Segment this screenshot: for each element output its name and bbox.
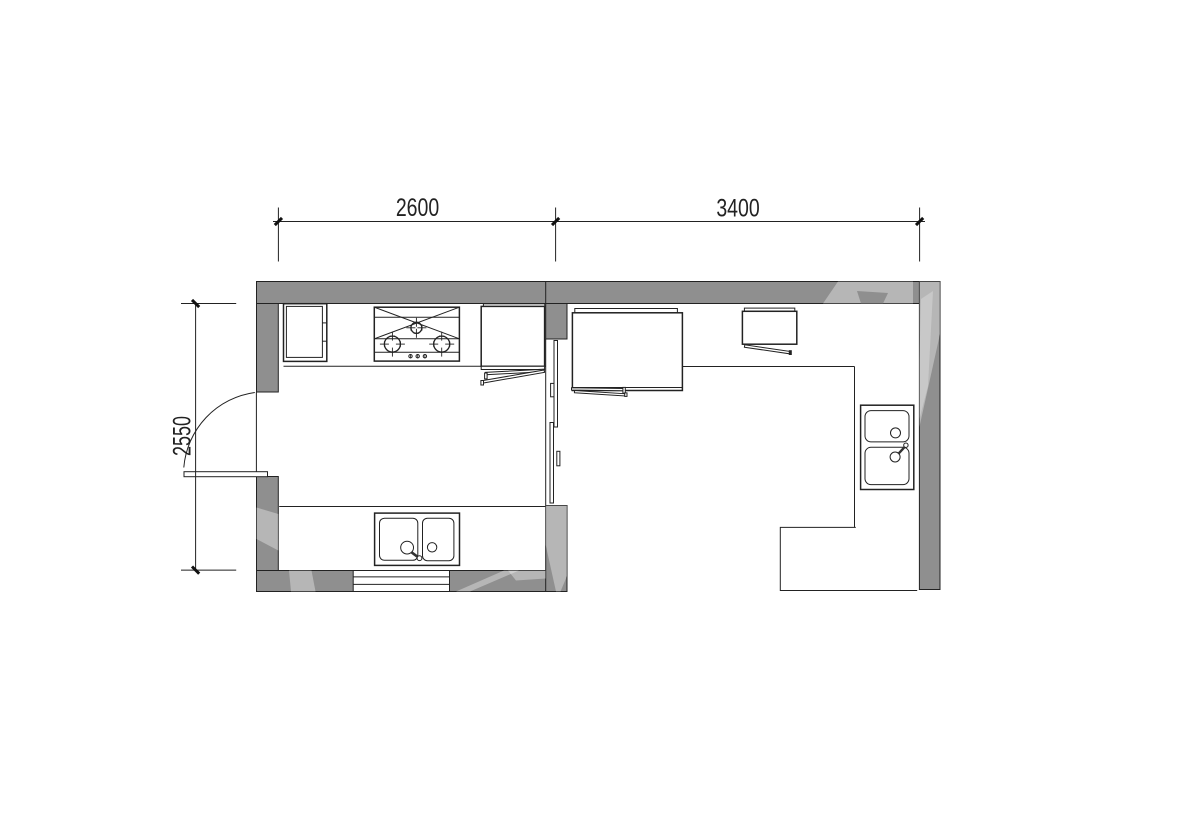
svg-text:3400: 3400 <box>716 194 759 222</box>
svg-text:2600: 2600 <box>396 194 439 222</box>
svg-text:2550: 2550 <box>168 416 197 456</box>
